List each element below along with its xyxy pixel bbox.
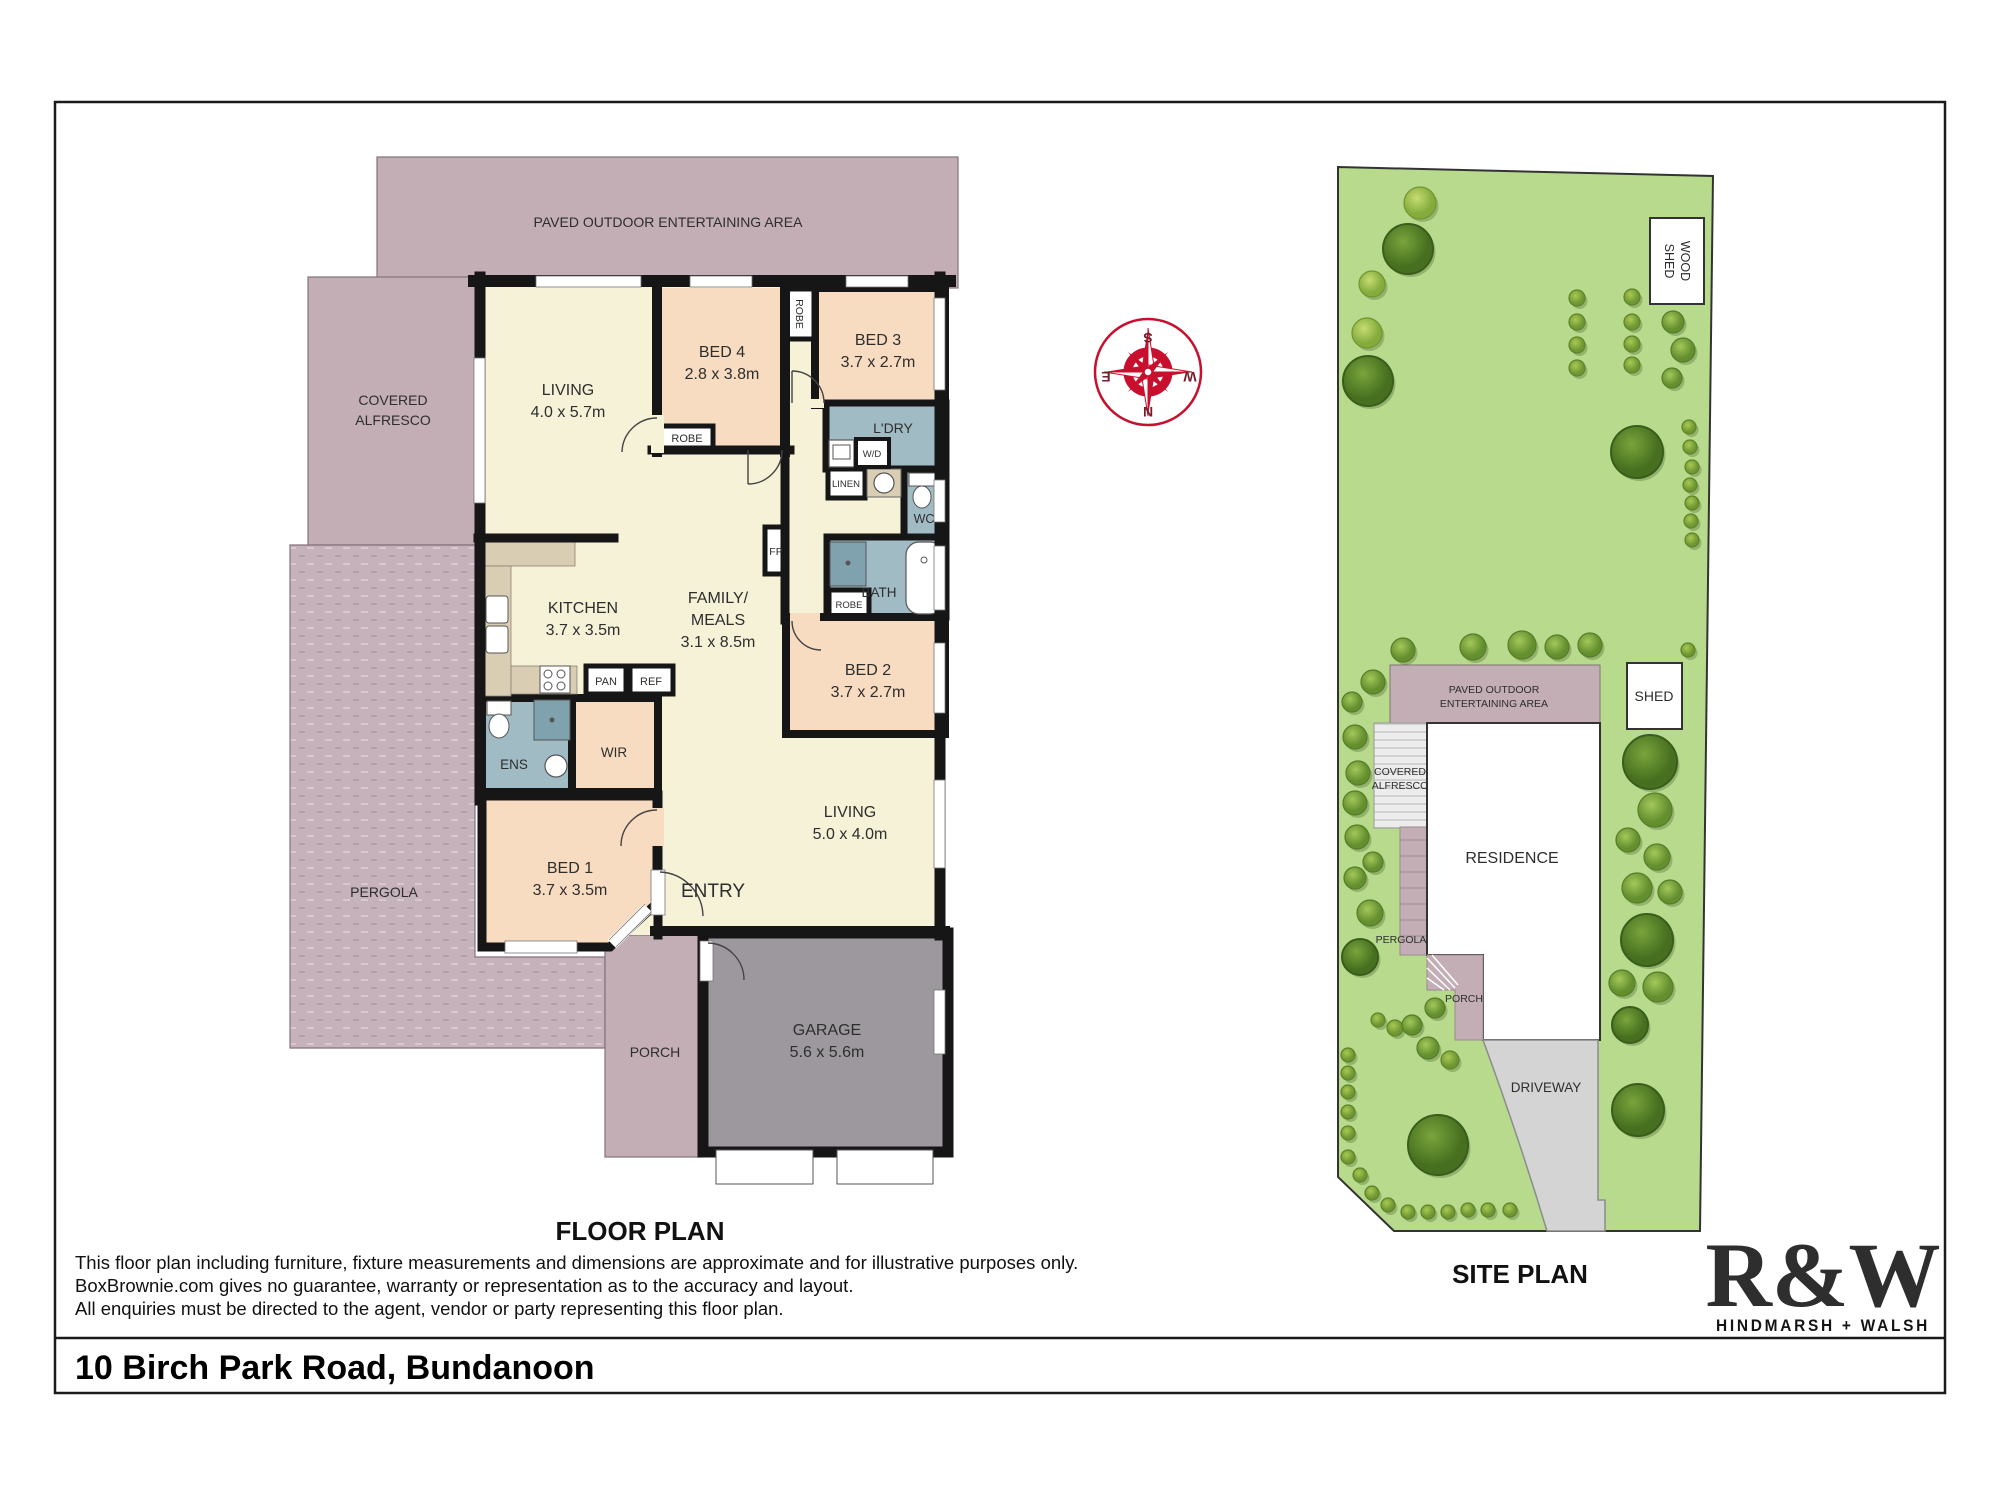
tree [1343, 791, 1367, 815]
tree [1685, 496, 1699, 510]
tree [1612, 1007, 1648, 1043]
tree [1383, 224, 1433, 274]
alfresco-label-1: COVERED [358, 392, 427, 408]
bed2-dims: 3.7 x 2.7m [831, 684, 906, 701]
site-wood-shed [1650, 218, 1704, 304]
tree [1569, 314, 1585, 330]
compass-east: E [1101, 369, 1110, 385]
cooktop [540, 666, 570, 693]
garage-label: GARAGE [793, 1022, 861, 1039]
site-porch-label: PORCH [1445, 993, 1483, 1005]
bed2-robe-label: ROBE [836, 600, 863, 611]
tree [1391, 638, 1415, 662]
covered-alfresco-area [308, 277, 478, 545]
family-label-2: MEALS [691, 612, 745, 629]
tree [1341, 1085, 1355, 1099]
pantry-label: PAN [595, 676, 617, 688]
tree [1612, 1084, 1664, 1136]
site-plan-title: SITE PLAN [1452, 1259, 1588, 1289]
bed2-label: BED 2 [845, 662, 891, 679]
tree [1353, 1168, 1367, 1182]
tree [1683, 440, 1697, 454]
compass-west: W [1183, 369, 1197, 385]
tree [1343, 356, 1393, 406]
family-dims: 3.1 x 8.5m [681, 634, 756, 651]
tree [1569, 360, 1585, 376]
fireplace-label: FP [769, 546, 782, 558]
disclaimer-line-2: BoxBrownie.com gives no guarantee, warra… [75, 1275, 853, 1296]
tree [1683, 478, 1697, 492]
washer-label: W/D [863, 449, 882, 460]
tree [1622, 873, 1652, 903]
tree [1381, 1198, 1395, 1212]
compass-rose: S N E W [1095, 319, 1201, 425]
floorplan-page: PAVED OUTDOOR ENTERTAINING AREA COVERED … [0, 0, 2000, 1500]
brand-name: HINDMARSH + WALSH [1716, 1316, 1930, 1335]
bed4-robe-label: ROBE [671, 433, 702, 445]
tree [1611, 426, 1663, 478]
living2-label: LIVING [824, 804, 876, 821]
tree [1684, 514, 1698, 528]
brand-logo: R&W HINDMARSH + WALSH [1705, 1224, 1940, 1335]
tree [1341, 1066, 1355, 1080]
tree [1624, 357, 1640, 373]
vanity-basin [874, 473, 894, 493]
site-wood-shed-label-2: SHED [1662, 244, 1676, 279]
laundry-label: L'DRY [873, 420, 913, 436]
site-residence-label: RESIDENCE [1465, 850, 1558, 867]
disclaimer-line-3: All enquiries must be directed to the ag… [75, 1298, 784, 1319]
tree [1408, 1115, 1468, 1175]
tree [1685, 460, 1699, 474]
ens-basin [545, 755, 567, 777]
site-pergola-label: PERGOLA [1376, 934, 1427, 946]
floor-plan-title: FLOOR PLAN [556, 1216, 725, 1246]
brand-logo-text: R&W [1705, 1224, 1940, 1326]
tree [1685, 533, 1699, 547]
kitchen-dims: 3.7 x 3.5m [546, 622, 621, 639]
living1-dims: 4.0 x 5.7m [531, 404, 606, 421]
tree [1341, 1126, 1355, 1140]
tree [1425, 998, 1445, 1018]
tree [1341, 1150, 1355, 1164]
compass-north: N [1143, 404, 1153, 420]
tree [1643, 972, 1673, 1002]
tree [1623, 735, 1677, 789]
fridge-label: REF [640, 676, 662, 688]
hall-robe-label: ROBE [793, 299, 805, 329]
tree [1342, 939, 1378, 975]
tree [1569, 290, 1585, 306]
compass-south: S [1143, 330, 1152, 346]
tree [1624, 336, 1640, 352]
tree [1365, 1186, 1379, 1200]
tree [1503, 1203, 1517, 1217]
tree [1404, 187, 1436, 219]
tree [1371, 1013, 1385, 1027]
bed4-dims: 2.8 x 3.8m [685, 366, 760, 383]
tree [1341, 1048, 1355, 1062]
garage-door [716, 1150, 813, 1184]
tree [1681, 643, 1695, 657]
ens-label: ENS [500, 757, 528, 772]
site-plan: PAVED OUTDOOR ENTERTAINING AREA COVERED … [1338, 167, 1713, 1289]
tree [1644, 844, 1670, 870]
garage-door [837, 1150, 933, 1184]
tree [1343, 725, 1367, 749]
wc-label: WC [914, 512, 935, 526]
site-wood-shed-label-1: WOOD [1678, 241, 1692, 281]
tree [1682, 420, 1696, 434]
living2-dims: 5.0 x 4.0m [813, 826, 888, 843]
tree [1363, 852, 1383, 872]
kitchen-sink [486, 596, 508, 623]
site-alfresco-label-2: ALFRESCO [1372, 780, 1429, 792]
entry-label: ENTRY [681, 881, 745, 902]
tree [1545, 635, 1569, 659]
tree [1401, 1205, 1415, 1219]
tree [1359, 271, 1385, 297]
tree [1460, 634, 1486, 660]
tree [1621, 914, 1673, 966]
garage-room [703, 933, 948, 1152]
tree [1342, 692, 1362, 712]
site-driveway-label: DRIVEWAY [1511, 1080, 1582, 1095]
site-shed-label: SHED [1635, 688, 1674, 704]
tree [1638, 793, 1672, 827]
bed1-label: BED 1 [547, 860, 593, 877]
tree [1421, 1205, 1435, 1219]
tree [1441, 1205, 1455, 1219]
bed3-label: BED 3 [855, 332, 901, 349]
tree [1508, 631, 1536, 659]
kitchen-label: KITCHEN [548, 600, 618, 617]
bed4-label: BED 4 [699, 344, 745, 361]
family-label-1: FAMILY/ [688, 590, 749, 607]
floor-plan: PAVED OUTDOOR ENTERTAINING AREA COVERED … [290, 157, 958, 1246]
site-alfresco-label-1: COVERED [1374, 766, 1426, 778]
property-address: 10 Birch Park Road, Bundanoon [75, 1349, 595, 1387]
plan-canvas: PAVED OUTDOOR ENTERTAINING AREA COVERED … [0, 0, 2000, 1500]
bath-label: BATH [861, 585, 896, 600]
tree [1671, 338, 1695, 362]
tree [1346, 761, 1370, 785]
disclaimer: This floor plan including furniture, fix… [75, 1252, 1078, 1319]
site-paved-label-1: PAVED OUTDOOR [1449, 684, 1540, 696]
pergola-label: PERGOLA [350, 884, 418, 900]
garage-dims: 5.6 x 5.6m [790, 1044, 865, 1061]
living1-label: LIVING [542, 382, 594, 399]
tree [1357, 900, 1383, 926]
bed1-dims: 3.7 x 3.5m [533, 882, 608, 899]
tree [1461, 1203, 1475, 1217]
kitchen-sink2 [486, 626, 508, 653]
tree [1662, 311, 1684, 333]
tree [1402, 1015, 1422, 1035]
paved-area-label: PAVED OUTDOOR ENTERTAINING AREA [534, 214, 804, 230]
tree [1387, 1020, 1403, 1036]
disclaimer-line-1: This floor plan including furniture, fix… [75, 1252, 1078, 1273]
tree [1658, 880, 1682, 904]
tree [1345, 825, 1369, 849]
tree [1417, 1037, 1439, 1059]
linen-label: LINEN [832, 479, 860, 490]
alfresco-label-2: ALFRESCO [355, 412, 431, 428]
tree [1481, 1203, 1495, 1217]
tree [1616, 828, 1640, 852]
site-paved-label-2: ENTERTAINING AREA [1440, 698, 1548, 710]
wir-label: WIR [601, 745, 627, 760]
tree [1352, 318, 1382, 348]
tree [1624, 314, 1640, 330]
tree [1609, 970, 1635, 996]
tree [1578, 633, 1602, 657]
bed3-dims: 3.7 x 2.7m [841, 354, 916, 371]
tree [1569, 337, 1585, 353]
porch-label: PORCH [630, 1044, 681, 1060]
tree [1344, 867, 1366, 889]
tree [1662, 368, 1682, 388]
tree [1441, 1051, 1459, 1069]
tree [1361, 670, 1385, 694]
tree [1341, 1105, 1355, 1119]
tree [1624, 289, 1640, 305]
